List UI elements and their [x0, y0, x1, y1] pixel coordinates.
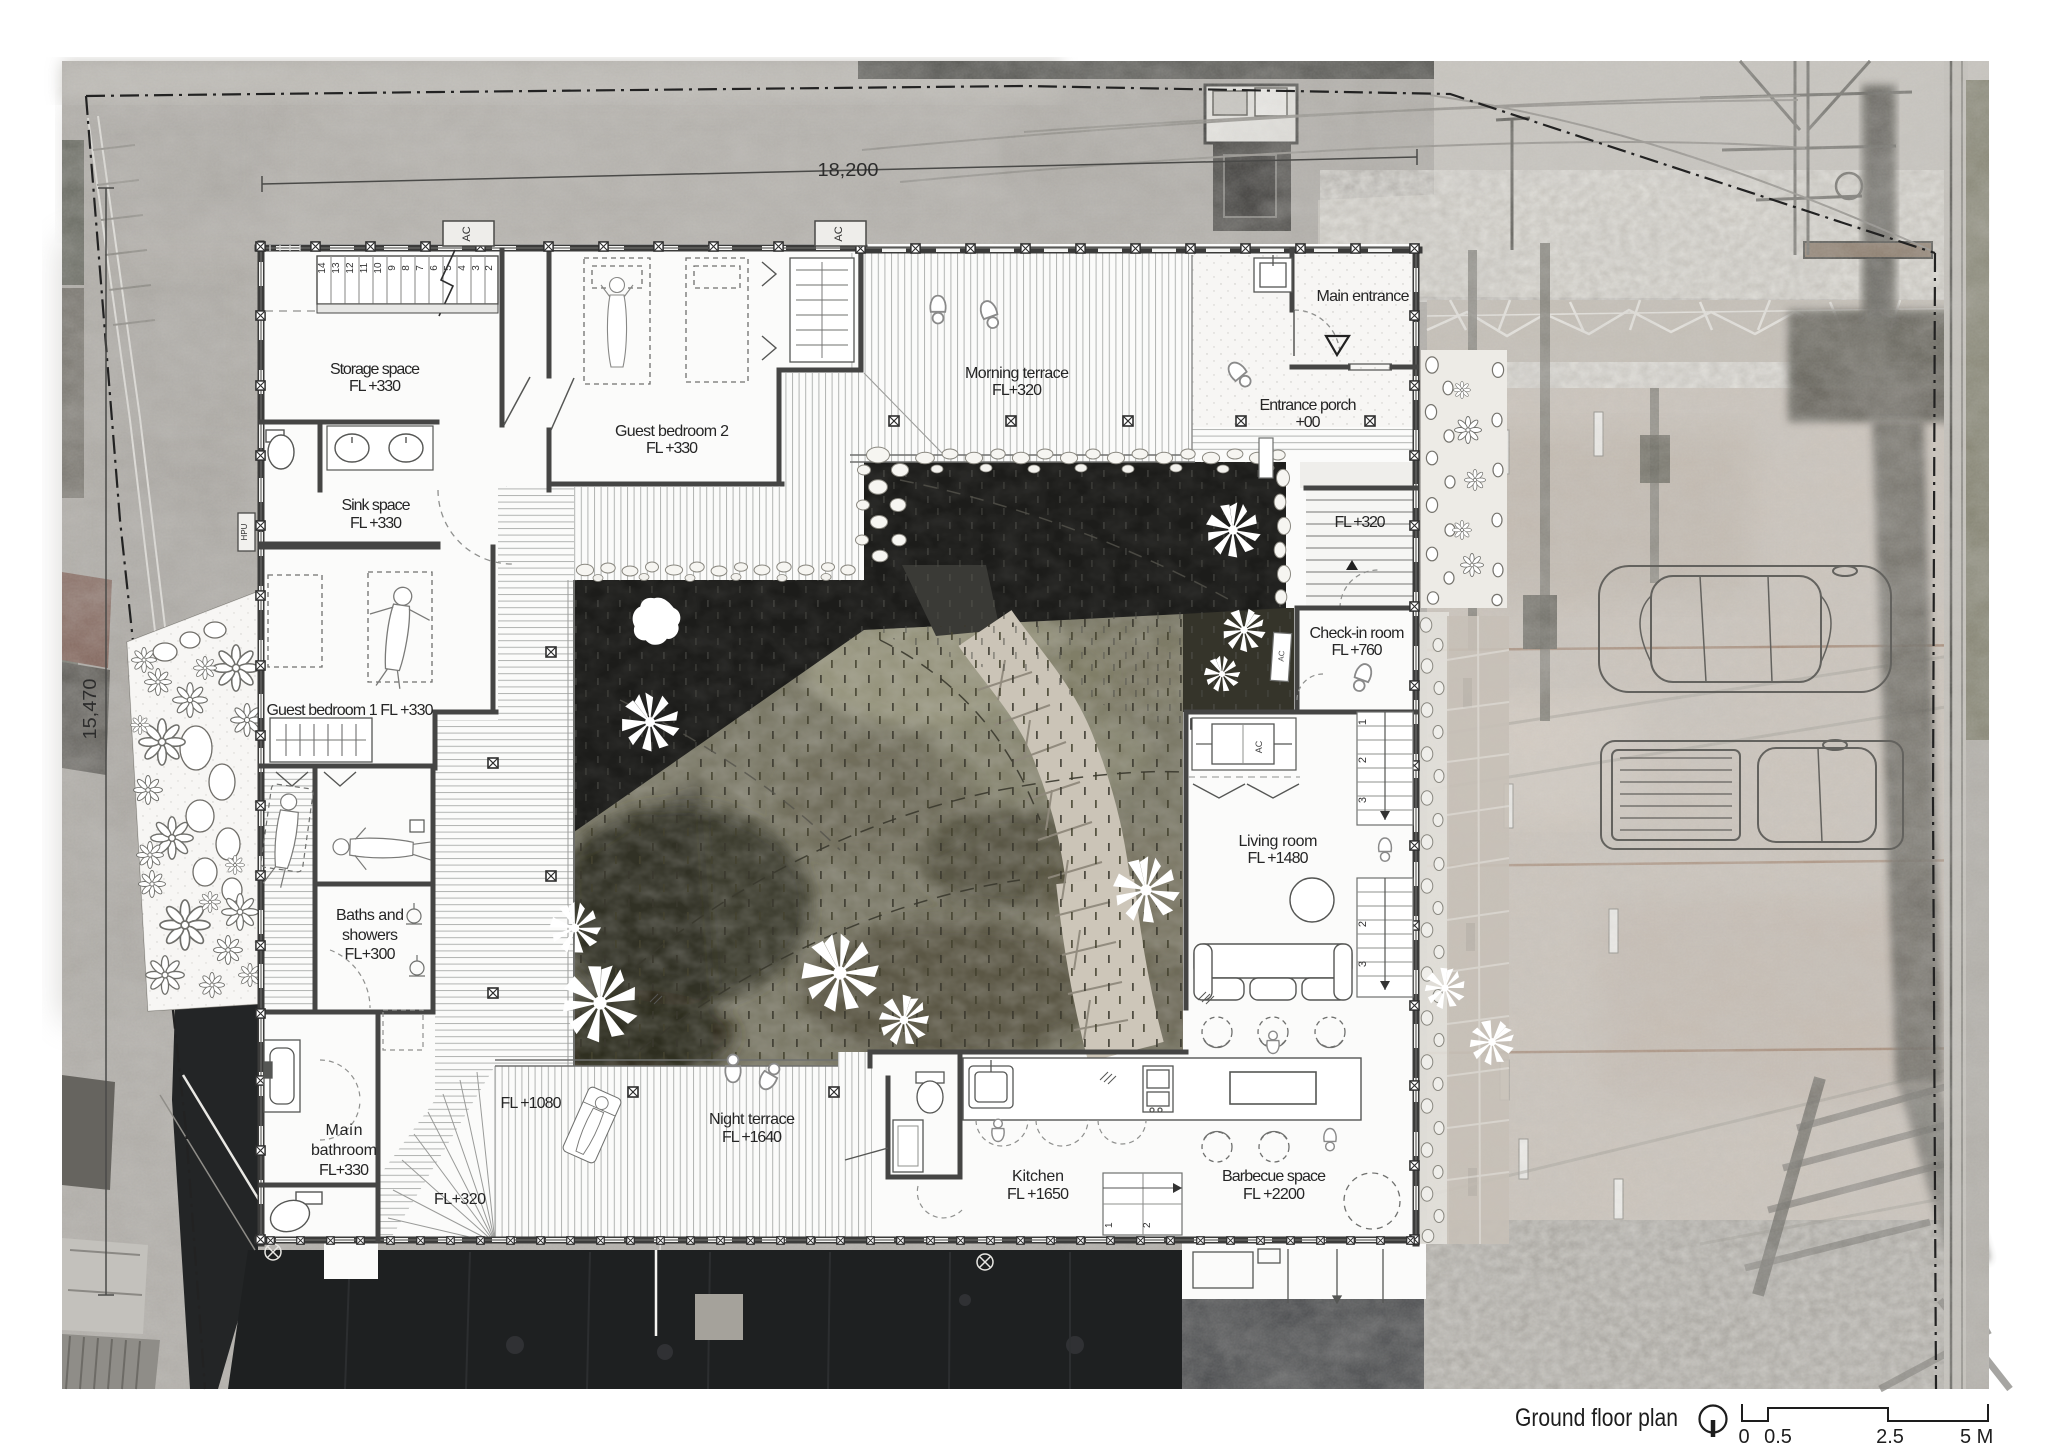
svg-text:2: 2 — [484, 265, 495, 271]
svg-text:Main entrance: Main entrance — [1317, 288, 1410, 305]
svg-text:12: 12 — [345, 262, 356, 274]
svg-text:FL+300: FL+300 — [345, 946, 396, 963]
svg-text:HPU: HPU — [240, 523, 249, 540]
svg-text:Check-in room: Check-in room — [1310, 625, 1405, 642]
svg-text:Entrance porch: Entrance porch — [1260, 397, 1357, 414]
svg-text:AC: AC — [1254, 740, 1264, 753]
svg-text:FL +330: FL +330 — [349, 378, 401, 395]
svg-text:showers: showers — [342, 927, 398, 944]
svg-text:FL +330: FL +330 — [350, 515, 402, 532]
svg-text:3: 3 — [1357, 961, 1369, 967]
svg-text:0: 0 — [1738, 1426, 1749, 1448]
svg-text:FL +2200: FL +2200 — [1243, 1186, 1305, 1203]
svg-text:15,470: 15,470 — [80, 679, 100, 740]
svg-text:Living room: Living room — [1239, 833, 1318, 850]
svg-text:Morning terrace: Morning terrace — [965, 365, 1069, 382]
svg-text:FL +1080: FL +1080 — [501, 1095, 562, 1112]
svg-text:FL +320: FL +320 — [1335, 514, 1386, 531]
svg-text:FL +330: FL +330 — [646, 440, 698, 457]
svg-text:9: 9 — [387, 265, 398, 271]
svg-text:Sink space: Sink space — [342, 497, 411, 514]
svg-text:FL +760: FL +760 — [1332, 642, 1383, 659]
svg-text:14: 14 — [317, 262, 328, 274]
svg-text:8: 8 — [401, 265, 412, 271]
svg-text:3: 3 — [1357, 797, 1369, 803]
svg-text:3: 3 — [471, 265, 482, 271]
svg-text:FL+330: FL+330 — [319, 1162, 369, 1179]
svg-text:10: 10 — [373, 262, 384, 274]
svg-text:4: 4 — [457, 265, 468, 271]
svg-text:Baths and: Baths and — [336, 907, 404, 924]
svg-text:FL+320: FL+320 — [434, 1191, 486, 1208]
svg-text:Main: Main — [326, 1122, 363, 1139]
svg-text:7: 7 — [415, 265, 426, 271]
svg-text:2.5: 2.5 — [1876, 1426, 1904, 1448]
svg-text:bathroom: bathroom — [311, 1142, 377, 1159]
svg-text:2: 2 — [1142, 1222, 1153, 1228]
svg-text:FL+320: FL+320 — [992, 382, 1042, 399]
svg-text:AC: AC — [833, 226, 845, 241]
svg-text:6: 6 — [429, 265, 440, 271]
svg-text:11: 11 — [359, 262, 370, 273]
svg-text:2: 2 — [1357, 921, 1369, 927]
svg-text:+00: +00 — [1296, 414, 1321, 431]
svg-text:18,200: 18,200 — [818, 160, 879, 180]
svg-text:0.5: 0.5 — [1764, 1426, 1792, 1448]
svg-text:Barbecue space: Barbecue space — [1222, 1168, 1326, 1185]
svg-text:5 M: 5 M — [1960, 1426, 1993, 1448]
svg-text:AC: AC — [461, 226, 473, 241]
svg-text:2: 2 — [1357, 757, 1369, 763]
svg-text:FL +1480: FL +1480 — [1248, 850, 1309, 867]
svg-text:Guest bedroom 2: Guest bedroom 2 — [615, 423, 729, 440]
svg-text:Kitchen: Kitchen — [1012, 1168, 1064, 1185]
svg-text:FL +1640: FL +1640 — [722, 1129, 782, 1146]
svg-text:5: 5 — [443, 265, 454, 271]
svg-text:AC: AC — [1277, 650, 1287, 662]
svg-text:1: 1 — [1104, 1222, 1115, 1228]
svg-text:Night terrace: Night terrace — [709, 1111, 795, 1128]
svg-text:Guest bedroom 1 FL +330: Guest bedroom 1 FL +330 — [267, 702, 434, 719]
svg-text:1: 1 — [1357, 719, 1369, 725]
svg-text:13: 13 — [331, 262, 342, 274]
svg-text:FL +1650: FL +1650 — [1007, 1186, 1069, 1203]
svg-text:Storage space: Storage space — [330, 361, 420, 378]
svg-text:Ground floor plan: Ground floor plan — [1515, 1404, 1678, 1432]
